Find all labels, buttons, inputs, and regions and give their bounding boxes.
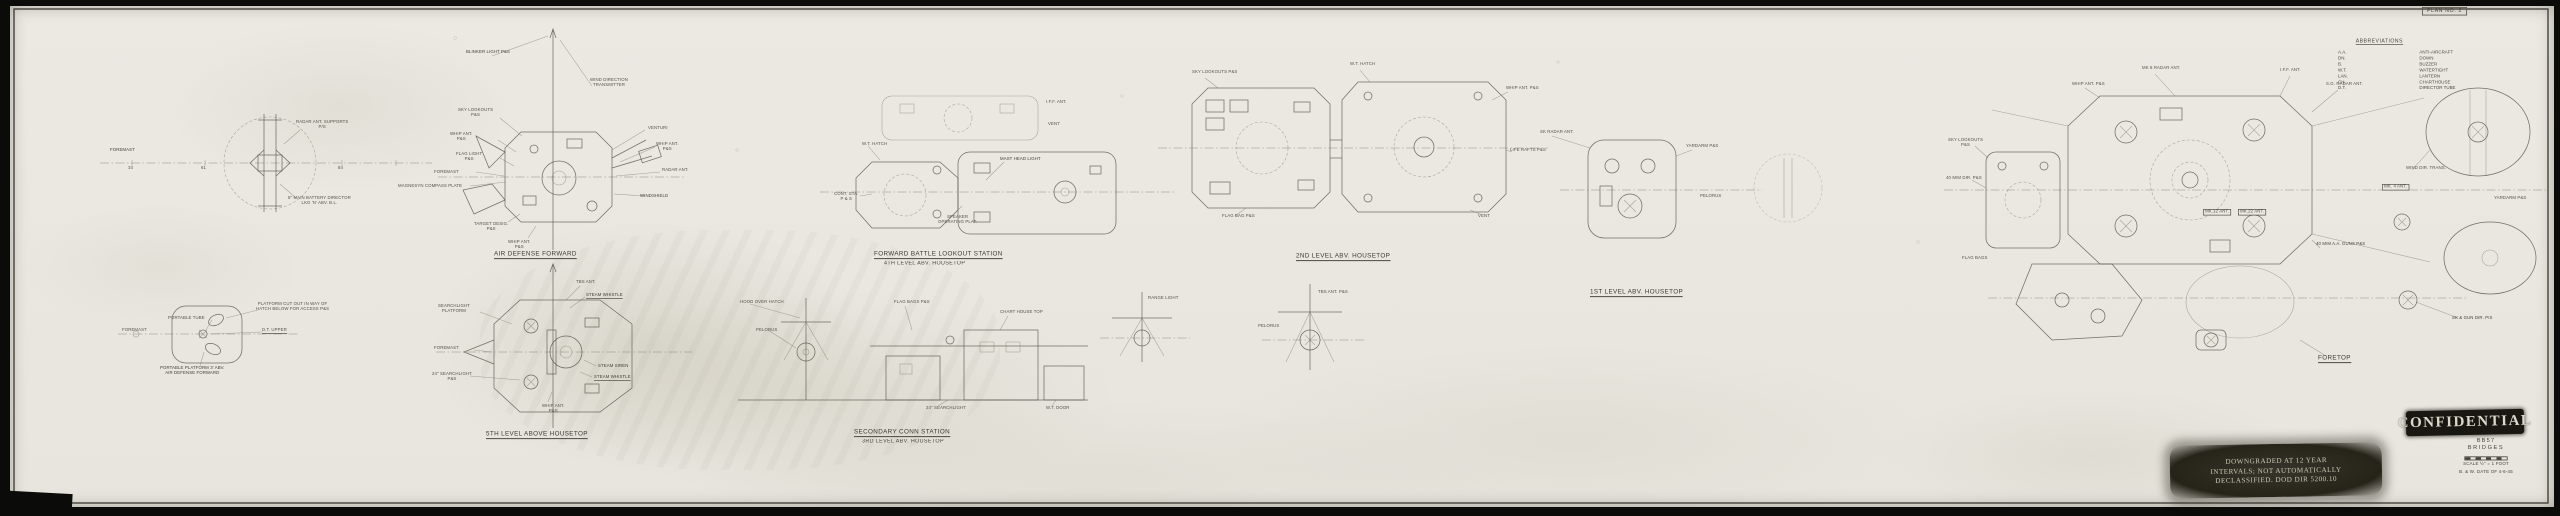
scanned-blueprint-sheet: PLAN NO. 2 ABBREVIATIONS A.A.ANTI-AIRCRA… — [0, 0, 2560, 516]
label-yardarm: YARDARM P&S — [2494, 196, 2526, 201]
section-title-battle-lookout: FORWARD BATTLE LOOKOUT STATION — [874, 251, 1003, 259]
label-flag-bags: FLAG BAGS P&S — [894, 300, 930, 305]
label-main-battery-director: 5" MAIN BATTERY DIRECTOR LKG 'N' ABV. B.… — [288, 196, 351, 206]
label-whip-ant: WHIP ANT. P&S — [656, 142, 679, 152]
plan-number: PLAN NO. 2 — [2422, 7, 2467, 16]
cluster-second-level-plan — [1158, 70, 1548, 216]
label-mast-head-light: MAST HEAD LIGHT — [1000, 157, 1041, 162]
label-venturi: VENTURI — [648, 126, 668, 131]
label-foremast: FOREMAST — [434, 170, 459, 175]
drawing-linework — [0, 0, 2560, 516]
label-iff-ant: I.F.F. ANT. — [2280, 68, 2301, 73]
date-note: B. & W. DATE OF 4-6-45 — [2446, 470, 2526, 475]
label-sk-gun-director: SK & GUN DIR. P/S — [2452, 316, 2492, 321]
label-blinker-light: BLINKER LIGHT P&S — [466, 50, 510, 55]
section-subtitle-3rd-level: 3RD LEVEL ABV. HOUSETOP — [862, 439, 944, 445]
label-searchlight-platform: SEARCHLIGHT PLATFORM — [438, 304, 470, 314]
section-title-1st-level: 1ST LEVEL ABV. HOUSETOP — [1590, 289, 1683, 297]
label-magnesyn-compass: MAGNESYN COMPASS PLATE — [398, 184, 462, 189]
section-subtitle-4th-level: 4TH LEVEL ABV. HOUSETOP — [884, 261, 965, 267]
cluster-battle-lookout — [820, 96, 1175, 234]
label-whip-ant: WHIP ANT. P&S — [542, 404, 565, 414]
cluster-bow-view-1 — [1100, 292, 1190, 362]
label-flag-bags: FLAG BAGS — [1962, 256, 1987, 261]
label-control-station: CONT. STA. P & S — [834, 192, 859, 202]
label-platform-cutout: PLATFORM CUT OUT IN WAY OF HATCH BELOW F… — [256, 302, 329, 312]
label-foremast: FOREMAST — [122, 328, 147, 333]
section-title-secondary-conn: SECONDARY CONN STATION — [854, 429, 950, 437]
label-pelorus: PELORUS — [1700, 194, 1721, 199]
label-sky-lookouts: SKY LOOKOUTS P&S — [1948, 138, 1983, 148]
declassification-stamp: DOWNGRADED AT 12 YEAR INTERVALS; NOT AUT… — [2170, 442, 2383, 499]
label-dt-upper: D.T. UPPER — [262, 328, 287, 334]
section-title-5th-level: 5TH LEVEL ABOVE HOUSETOP — [486, 431, 588, 439]
section-title-2nd-level: 2ND LEVEL ABV. HOUSETOP — [1296, 253, 1390, 261]
label-portable-platform: PORTABLE PLATFORM 3' ABV. AIR DEFENSE FO… — [160, 366, 225, 376]
label-radar-ant: RADAR ANT. — [662, 168, 689, 173]
confidential-stamp: CONFIDENTIAL — [2406, 409, 2524, 436]
label-sky-lookouts: SKY LOOKOUTS P&S — [458, 108, 493, 118]
label-station-number: 34 — [128, 166, 133, 171]
label-mk12-ant: MK.12 ANT. — [2203, 209, 2231, 215]
label-mk4-ant: MK. 4 ANT. — [2382, 184, 2409, 190]
label-flag-light: FLAG LIGHT P&S — [456, 152, 482, 162]
label-pelorus: PELORUS — [756, 328, 777, 333]
section-title-air-defense: AIR DEFENSE FORWARD — [494, 251, 577, 259]
label-tbs-ant: TBS ANT. P&S — [1318, 290, 1348, 295]
label-whip-ant: WHIP ANT. P&S — [508, 240, 531, 250]
paper-speckles — [454, 37, 1920, 244]
label-tbs-ant: TBS ANT. — [576, 280, 596, 285]
label-radar-ant-supports: RADAR ANT. SUPPORTS P/S — [296, 120, 348, 130]
cluster-air-defense-forward — [438, 29, 686, 250]
label-40mm-aa-guns: 40 M/M A.A. GUNS P&S — [2316, 242, 2365, 247]
ship-designation: BB57 — [2446, 438, 2526, 444]
label-windshield: WINDSHIELD — [640, 194, 668, 199]
label-wt-door: W.T. DOOR — [1046, 406, 1070, 411]
label-steam-whistle: STEAM WHISTLE — [594, 375, 631, 381]
label-steam-whistle: STEAM WHISTLE — [586, 293, 623, 299]
label-wt-hatch: W.T. HATCH — [862, 142, 887, 147]
label-station-number: 61 — [201, 166, 206, 171]
label-sk-radar-ant: SK RADAR ANT. — [1540, 130, 1574, 135]
label-life-rafts: LIFE RAFTS P&S — [1510, 148, 1546, 153]
label-vent: VENT — [1048, 122, 1060, 127]
label-mk22-ant: MK.22 ANT. — [2238, 209, 2266, 215]
label-24in-searchlight: 24" SEARCHLIGHT — [926, 406, 966, 411]
cluster-first-level-plan — [1552, 136, 1822, 238]
label-mk8-radar-ant: MK 8 RADAR ANT. — [2142, 66, 2180, 71]
label-foremast: FOREMAST — [434, 346, 459, 351]
label-target-desig: TARGET DESIG. P&S — [474, 222, 508, 232]
label-flag-bag: FLAG BAG P&S — [1222, 214, 1255, 219]
scale-bar — [2464, 456, 2507, 460]
label-sky-lookouts: SKY LOOKOUTS P&S — [1192, 70, 1237, 75]
label-portable-tube: PORTABLE TUBE — [168, 316, 205, 321]
label-whip-ant: WHIP ANT. P&S — [450, 132, 473, 142]
drawing-title: BRIDGES — [2446, 445, 2526, 451]
abbreviations-title: ABBREVIATIONS — [2356, 39, 2403, 45]
label-whip-ant: WHIP ANT. P&S — [2072, 82, 2105, 87]
label-range-light: RANGE LIGHT — [1148, 296, 1178, 301]
label-chart-house-top: CHART HOUSE TOP — [1000, 310, 1043, 315]
confidential-stamp-text: CONFIDENTIAL — [2397, 413, 2532, 433]
label-iff-ant: I.F.F. ANT. — [1046, 100, 1067, 105]
scan-edge-tear — [0, 490, 73, 516]
cluster-portable-platform — [118, 306, 300, 366]
label-whip-ant: WHIP ANT. P&S — [1506, 86, 1539, 91]
cluster-foremast-section — [100, 114, 432, 212]
scale-note: SCALE ½" = 1 FOOT — [2446, 462, 2526, 467]
label-24in-searchlight: 24" SEARCHLIGHT P&S — [432, 372, 472, 382]
label-wind-dir-transmitter: WIND DIR. TRANS. — [2406, 166, 2446, 171]
label-40mm-director: 40 M/M DIR. P&S — [1946, 176, 1982, 181]
section-title-foretop: FORETOP — [2318, 355, 2351, 363]
label-yardarm: YARDARM P&S — [1686, 144, 1718, 149]
abbr-meaning: DIRECTOR TUBE — [2419, 86, 2455, 92]
label-vent: VENT — [1478, 214, 1490, 219]
label-sg-radar-ant: S.G. RADAR ANT. — [2326, 82, 2363, 87]
label-foremast: FOREMAST — [110, 148, 135, 153]
label-speaker-platform: SPEAKER OPERATING PLAT. — [938, 215, 977, 225]
label-hood-over-hatch: HOOD OVER HATCH — [740, 300, 784, 305]
label-wind-direction-transmitter: WIND DIRECTION TRANSMITTER — [590, 78, 628, 88]
title-block: BB57 BRIDGES SCALE ½" = 1 FOOT B. & W. D… — [2446, 438, 2526, 475]
label-wt-hatch: W.T. HATCH — [1350, 62, 1375, 67]
label-station-number: 84 — [338, 166, 343, 171]
label-steam-siren: STEAM SIREN — [598, 364, 628, 369]
label-pelorus: PELORUS — [1258, 324, 1279, 329]
declassification-line: DECLASSIFIED. DOD DIR 5200.10 — [2215, 474, 2337, 485]
